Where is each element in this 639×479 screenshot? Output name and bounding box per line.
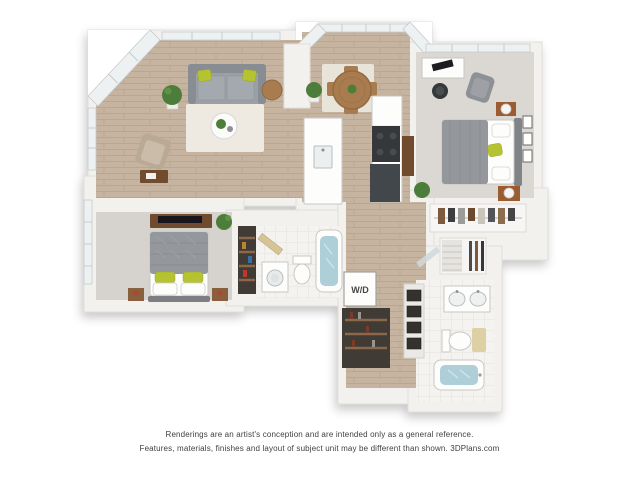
floor-plan-page: W/D: [0, 0, 639, 479]
window-dining-bay: [318, 24, 408, 32]
wall-art: [523, 116, 532, 162]
floor-plan-rendering: W/D: [0, 0, 639, 479]
tv: [158, 216, 202, 223]
pillow: [153, 283, 177, 295]
lamp: [504, 188, 514, 198]
disclaimer-line-2: Features, materials, finishes and layout…: [0, 442, 639, 456]
pillow: [492, 124, 510, 137]
accent-pillow: [183, 272, 203, 283]
toilet: [442, 330, 471, 352]
nightstand: [498, 186, 520, 201]
pillow: [492, 167, 510, 180]
wall-column: [284, 44, 310, 108]
coffee-table: [211, 113, 237, 139]
headboard: [148, 296, 210, 302]
walk-in-closet: [430, 204, 526, 232]
floor-plan: W/D: [84, 22, 548, 412]
toilet: [293, 256, 311, 284]
bathtub: [434, 360, 484, 390]
linen-closet: [238, 226, 256, 294]
kitchen-island: [304, 118, 342, 204]
bed: [442, 118, 522, 186]
side-table: [262, 80, 282, 100]
sofa: [188, 64, 266, 104]
closet-shoe-rack: [440, 238, 486, 274]
bedroom-plant: [414, 182, 430, 198]
accent-pillow: [155, 272, 175, 283]
nightstand: [128, 288, 144, 301]
hall-bookshelf: [404, 284, 424, 358]
nightstand: [212, 288, 228, 301]
disclaimer: Renderings are an artist's conception an…: [0, 428, 639, 455]
sink: [449, 292, 465, 306]
console-table: [140, 170, 168, 183]
wd-label: W/D: [351, 285, 369, 295]
throw-pillow: [242, 69, 256, 82]
pantry-closet: [342, 308, 390, 368]
office-chair: [432, 83, 448, 99]
washer: [262, 262, 288, 292]
bathtub: [316, 230, 342, 292]
throw-pillow: [197, 69, 211, 82]
stove: [372, 126, 400, 162]
desk: [422, 58, 464, 78]
pantry-cabinet: [402, 136, 414, 176]
table-plant: [348, 85, 357, 94]
bed: [148, 232, 210, 302]
washer-dryer-closet: W/D: [344, 272, 376, 306]
pillow: [181, 283, 205, 295]
double-vanity: [444, 286, 490, 312]
plant: [216, 214, 232, 230]
headboard: [514, 118, 522, 186]
dining-table: [333, 71, 371, 109]
window-living-top: [162, 32, 280, 40]
sink: [470, 292, 486, 306]
accent-pillow: [487, 143, 503, 157]
lamp: [501, 104, 511, 114]
tv-console: [150, 214, 212, 228]
disclaimer-line-1: Renderings are an artist's conception an…: [0, 428, 639, 442]
refrigerator: [370, 164, 400, 202]
window-living-left: [88, 108, 96, 170]
nightstand: [496, 102, 516, 116]
bath-mat: [472, 328, 486, 352]
window-bedroom2-left: [84, 200, 92, 284]
